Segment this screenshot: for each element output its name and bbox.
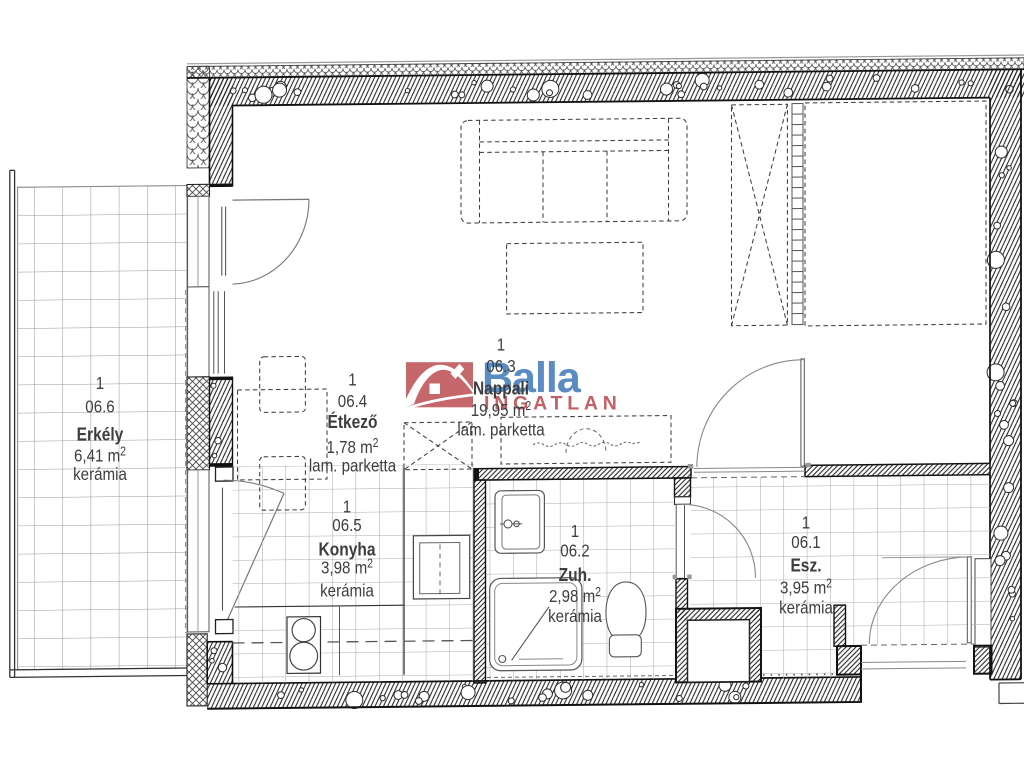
svg-text:Erkély: Erkély xyxy=(77,424,124,445)
svg-text:06.4: 06.4 xyxy=(338,391,367,412)
svg-text:1: 1 xyxy=(343,496,351,517)
svg-text:1: 1 xyxy=(497,334,505,355)
svg-text:3,98 m2: 3,98 m2 xyxy=(321,557,373,578)
svg-text:6,41 m2: 6,41 m2 xyxy=(74,445,126,466)
svg-text:lam. parketta: lam. parketta xyxy=(457,419,545,440)
svg-text:3,95 m2: 3,95 m2 xyxy=(780,577,832,598)
svg-text:06.1: 06.1 xyxy=(791,532,820,553)
svg-text:kerámia: kerámia xyxy=(73,464,127,485)
svg-text:2,98 m2: 2,98 m2 xyxy=(549,586,601,607)
svg-text:Zuh.: Zuh. xyxy=(559,565,592,586)
svg-text:Esz.: Esz. xyxy=(790,555,821,576)
svg-text:1: 1 xyxy=(802,512,810,533)
svg-text:1: 1 xyxy=(571,521,579,542)
svg-text:06.3: 06.3 xyxy=(486,356,515,377)
svg-text:1: 1 xyxy=(348,369,356,390)
svg-text:19,95 m2: 19,95 m2 xyxy=(471,400,531,421)
svg-text:lam. parketta: lam. parketta xyxy=(309,455,397,476)
svg-text:kerámia: kerámia xyxy=(548,606,602,627)
svg-text:06.6: 06.6 xyxy=(85,396,114,417)
svg-text:Nappali: Nappali xyxy=(473,378,529,399)
svg-text:06.5: 06.5 xyxy=(332,515,361,536)
svg-text:kerámia: kerámia xyxy=(320,580,374,601)
svg-text:06.2: 06.2 xyxy=(560,540,589,561)
svg-text:1,78 m2: 1,78 m2 xyxy=(326,437,378,458)
svg-text:kerámia: kerámia xyxy=(779,597,833,618)
svg-text:1: 1 xyxy=(96,373,104,394)
svg-text:Étkező: Étkező xyxy=(327,412,377,433)
